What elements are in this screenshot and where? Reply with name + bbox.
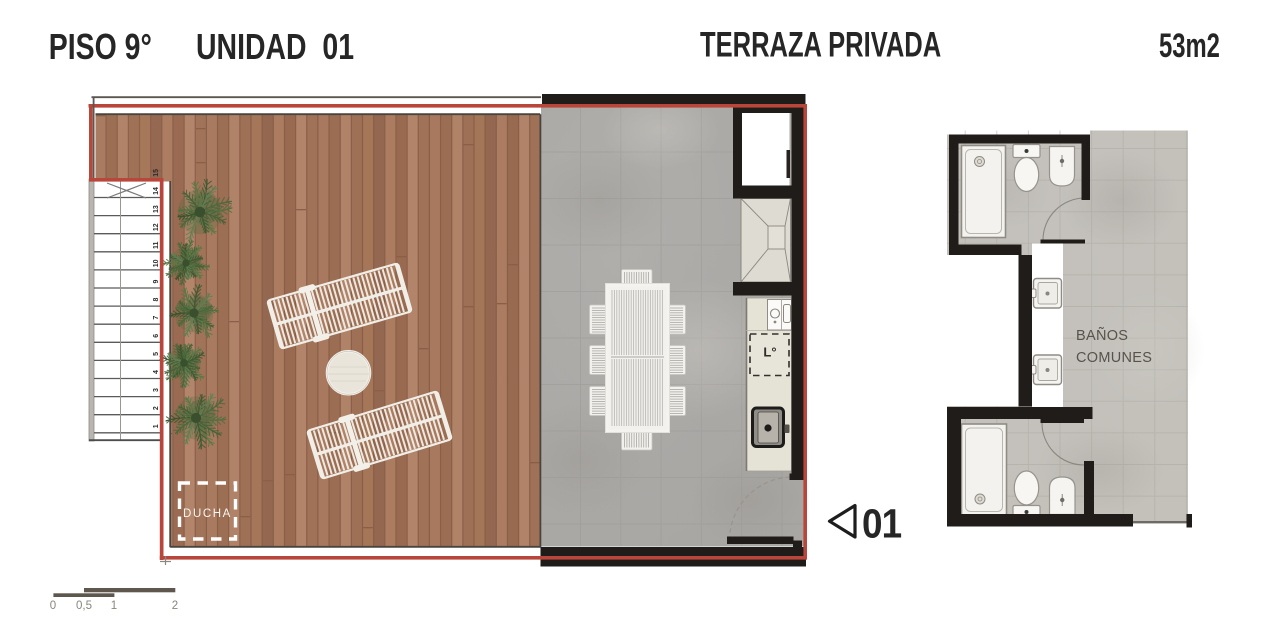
svg-text:9: 9 (153, 279, 160, 283)
svg-text:2: 2 (153, 406, 160, 410)
svg-text:6: 6 (153, 334, 160, 338)
svg-text:2: 2 (172, 600, 178, 612)
svg-text:7: 7 (153, 316, 160, 320)
svg-text:15: 15 (153, 169, 160, 177)
svg-text:14: 14 (153, 187, 160, 195)
svg-text:UNIDAD 01: UNIDAD 01 (196, 27, 354, 67)
svg-text:4: 4 (153, 370, 160, 374)
svg-text:12: 12 (153, 223, 160, 231)
svg-text:0: 0 (50, 600, 56, 612)
svg-text:1: 1 (111, 600, 117, 612)
svg-text:8: 8 (153, 298, 160, 302)
svg-text:3: 3 (153, 388, 160, 392)
svg-text:PISO 9°: PISO 9° (49, 27, 152, 67)
svg-text:13: 13 (153, 205, 160, 213)
svg-text:5: 5 (153, 352, 160, 356)
svg-text:01: 01 (862, 502, 901, 547)
svg-text:L°: L° (763, 345, 776, 360)
svg-text:11: 11 (153, 241, 160, 249)
svg-text:1: 1 (153, 424, 160, 428)
svg-text:0,5: 0,5 (76, 600, 92, 612)
svg-text:COMUNES: COMUNES (1076, 350, 1152, 366)
svg-text:TERRAZA PRIVADA: TERRAZA PRIVADA (700, 26, 941, 65)
svg-text:DUCHA: DUCHA (183, 508, 232, 520)
svg-text:BAÑOS: BAÑOS (1076, 327, 1128, 344)
svg-text:53m2: 53m2 (1159, 27, 1220, 65)
svg-text:10: 10 (153, 259, 160, 267)
